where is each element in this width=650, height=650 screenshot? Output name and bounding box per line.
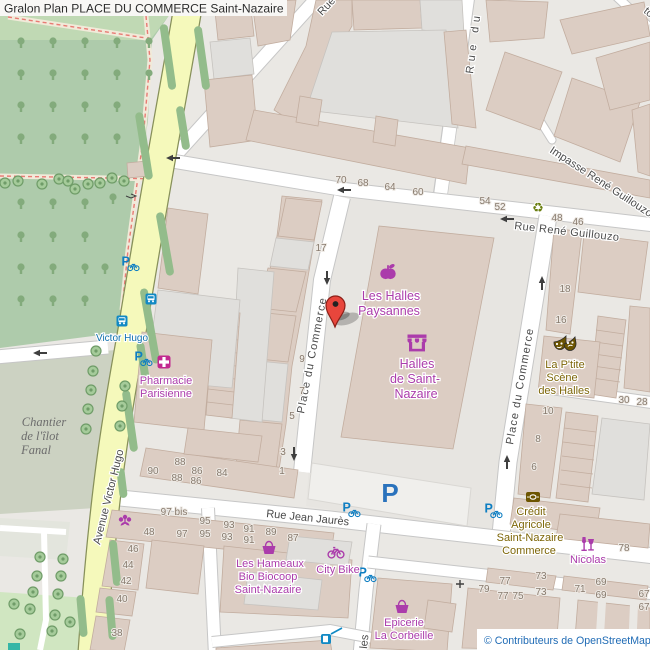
svg-text:70: 70 — [335, 175, 347, 186]
svg-text:46: 46 — [572, 217, 584, 228]
svg-text:10: 10 — [542, 406, 554, 417]
svg-text:67: 67 — [638, 589, 650, 600]
svg-text:28: 28 — [636, 397, 648, 408]
svg-text:Saint-Nazaire: Saint-Nazaire — [235, 584, 302, 596]
svg-text:les: les — [358, 634, 371, 650]
svg-text:17: 17 — [315, 243, 327, 254]
svg-text:Nazaire: Nazaire — [394, 387, 437, 401]
svg-text:Fanal: Fanal — [20, 443, 51, 457]
svg-text:69: 69 — [595, 577, 607, 588]
svg-text:73: 73 — [535, 587, 547, 598]
svg-text:90: 90 — [147, 466, 159, 477]
svg-text:97 bis: 97 bis — [161, 507, 188, 518]
svg-text:48: 48 — [143, 527, 155, 538]
svg-text:Parisienne: Parisienne — [140, 388, 192, 400]
svg-text:93: 93 — [221, 532, 233, 543]
svg-text:91: 91 — [243, 535, 255, 546]
svg-text:La P'tite: La P'tite — [545, 359, 584, 371]
svg-text:46: 46 — [127, 544, 139, 555]
svg-text:des Halles: des Halles — [538, 385, 590, 397]
svg-text:69: 69 — [595, 590, 607, 601]
svg-text:Pharmacie: Pharmacie — [140, 375, 193, 387]
svg-text:Agricole: Agricole — [511, 519, 551, 531]
svg-text:91: 91 — [243, 524, 255, 535]
svg-text:89: 89 — [265, 527, 277, 538]
svg-text:Epicerie: Epicerie — [384, 617, 424, 629]
svg-text:Commerce: Commerce — [502, 545, 556, 557]
svg-text:40: 40 — [116, 594, 128, 605]
svg-text:Nicolas: Nicolas — [570, 554, 607, 566]
svg-text:75: 75 — [512, 591, 524, 602]
svg-text:30: 30 — [618, 395, 630, 406]
svg-text:Scène: Scène — [546, 372, 577, 384]
svg-text:87: 87 — [287, 533, 299, 544]
svg-text:de l'îlot: de l'îlot — [21, 429, 59, 443]
svg-text:71: 71 — [574, 584, 586, 595]
svg-text:7: 7 — [299, 386, 305, 397]
svg-text:60: 60 — [412, 187, 424, 198]
svg-text:6: 6 — [531, 462, 537, 473]
svg-text:Bio Biocoop: Bio Biocoop — [239, 571, 298, 583]
svg-text:P: P — [381, 478, 398, 508]
svg-text:42: 42 — [120, 576, 132, 587]
svg-text:54: 54 — [479, 196, 491, 207]
svg-text:5: 5 — [289, 411, 295, 422]
svg-text:52: 52 — [494, 202, 506, 213]
svg-text:44: 44 — [122, 560, 134, 571]
svg-text:8: 8 — [535, 434, 541, 445]
svg-text:67: 67 — [638, 602, 650, 613]
svg-text:68: 68 — [357, 178, 369, 189]
svg-text:Saint-Nazaire: Saint-Nazaire — [497, 532, 564, 544]
svg-text:88: 88 — [171, 473, 183, 484]
svg-text:93: 93 — [223, 520, 235, 531]
svg-text:18: 18 — [559, 284, 571, 295]
svg-text:88: 88 — [174, 457, 186, 468]
svg-text:95: 95 — [199, 516, 211, 527]
svg-text:1: 1 — [279, 466, 285, 477]
svg-text:95: 95 — [199, 529, 211, 540]
svg-text:Crédit: Crédit — [516, 506, 545, 518]
svg-text:Les Hameaux: Les Hameaux — [236, 558, 304, 570]
svg-text:64: 64 — [384, 182, 396, 193]
svg-text:Victor Hugo: Victor Hugo — [96, 333, 149, 344]
svg-text:♻: ♻ — [532, 200, 544, 215]
svg-text:Gralon Plan PLACE DU COMMERCE: Gralon Plan PLACE DU COMMERCE Saint-Naza… — [4, 2, 284, 16]
svg-text:38: 38 — [111, 628, 123, 639]
svg-text:48: 48 — [551, 213, 563, 224]
svg-text:City Bike: City Bike — [316, 564, 359, 576]
svg-text:La Corbeille: La Corbeille — [375, 630, 434, 642]
svg-text:Halles: Halles — [400, 357, 435, 371]
svg-text:3: 3 — [280, 447, 286, 458]
svg-text:73: 73 — [535, 571, 547, 582]
svg-text:78: 78 — [618, 543, 630, 554]
svg-text:77: 77 — [497, 591, 509, 602]
svg-text:9: 9 — [299, 354, 305, 365]
svg-text:Paysannes: Paysannes — [358, 304, 420, 318]
svg-text:© Contributeurs de OpenStreetM: © Contributeurs de OpenStreetMap — [484, 635, 650, 647]
svg-text:79: 79 — [478, 584, 490, 595]
svg-text:84: 84 — [216, 468, 228, 479]
svg-text:Chantier: Chantier — [22, 415, 67, 429]
svg-text:Les Halles: Les Halles — [362, 289, 420, 303]
svg-text:97: 97 — [176, 529, 188, 540]
svg-text:86: 86 — [190, 476, 202, 487]
svg-text:de Saint-: de Saint- — [390, 372, 440, 386]
svg-text:77: 77 — [499, 576, 511, 587]
svg-text:16: 16 — [555, 315, 567, 326]
